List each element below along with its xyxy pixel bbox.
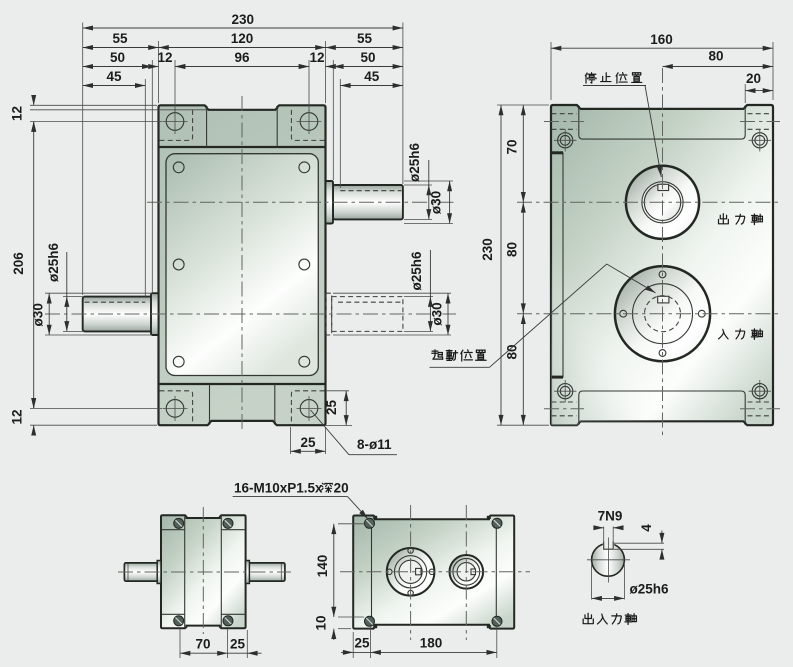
svg-text:55: 55 bbox=[357, 31, 373, 46]
svg-text:25: 25 bbox=[324, 400, 339, 416]
svg-text:12: 12 bbox=[309, 50, 324, 65]
svg-text:55: 55 bbox=[112, 31, 128, 46]
svg-text:45: 45 bbox=[106, 69, 122, 84]
svg-text:ø30: ø30 bbox=[31, 303, 46, 326]
svg-text:180: 180 bbox=[420, 636, 443, 651]
svg-text:96: 96 bbox=[234, 50, 250, 65]
svg-text:12: 12 bbox=[157, 50, 172, 65]
svg-text:120: 120 bbox=[231, 31, 254, 46]
svg-text:ø25h6: ø25h6 bbox=[46, 243, 61, 283]
svg-text:160: 160 bbox=[650, 32, 673, 47]
svg-text:8-ø11: 8-ø11 bbox=[357, 437, 392, 452]
svg-text:70: 70 bbox=[195, 636, 210, 651]
svg-text:12: 12 bbox=[10, 106, 25, 121]
svg-text:16-M10xP1.5x: 16-M10xP1.5x bbox=[234, 481, 323, 496]
svg-text:4: 4 bbox=[639, 524, 654, 532]
svg-text:45: 45 bbox=[364, 69, 380, 84]
svg-text:12: 12 bbox=[10, 409, 25, 424]
svg-text:25: 25 bbox=[354, 636, 370, 651]
svg-text:ø30: ø30 bbox=[429, 191, 444, 214]
svg-text:50: 50 bbox=[110, 50, 125, 65]
svg-text:230: 230 bbox=[232, 12, 255, 27]
svg-text:20: 20 bbox=[334, 481, 349, 496]
svg-text:20: 20 bbox=[746, 71, 761, 86]
svg-text:80: 80 bbox=[708, 49, 723, 64]
svg-text:10: 10 bbox=[314, 615, 329, 630]
svg-text:ø25h6: ø25h6 bbox=[407, 143, 422, 183]
svg-text:7N9: 7N9 bbox=[598, 509, 623, 524]
svg-text:70: 70 bbox=[505, 139, 520, 154]
svg-text:25: 25 bbox=[230, 636, 246, 651]
svg-text:140: 140 bbox=[315, 555, 330, 578]
svg-text:206: 206 bbox=[11, 252, 26, 275]
svg-text:25: 25 bbox=[300, 435, 316, 450]
svg-text:230: 230 bbox=[480, 238, 495, 261]
svg-text:ø30: ø30 bbox=[430, 302, 445, 325]
svg-text:50: 50 bbox=[360, 50, 375, 65]
svg-text:ø25h6: ø25h6 bbox=[409, 251, 424, 291]
svg-text:ø25h6: ø25h6 bbox=[630, 582, 670, 597]
svg-text:80: 80 bbox=[505, 242, 520, 257]
